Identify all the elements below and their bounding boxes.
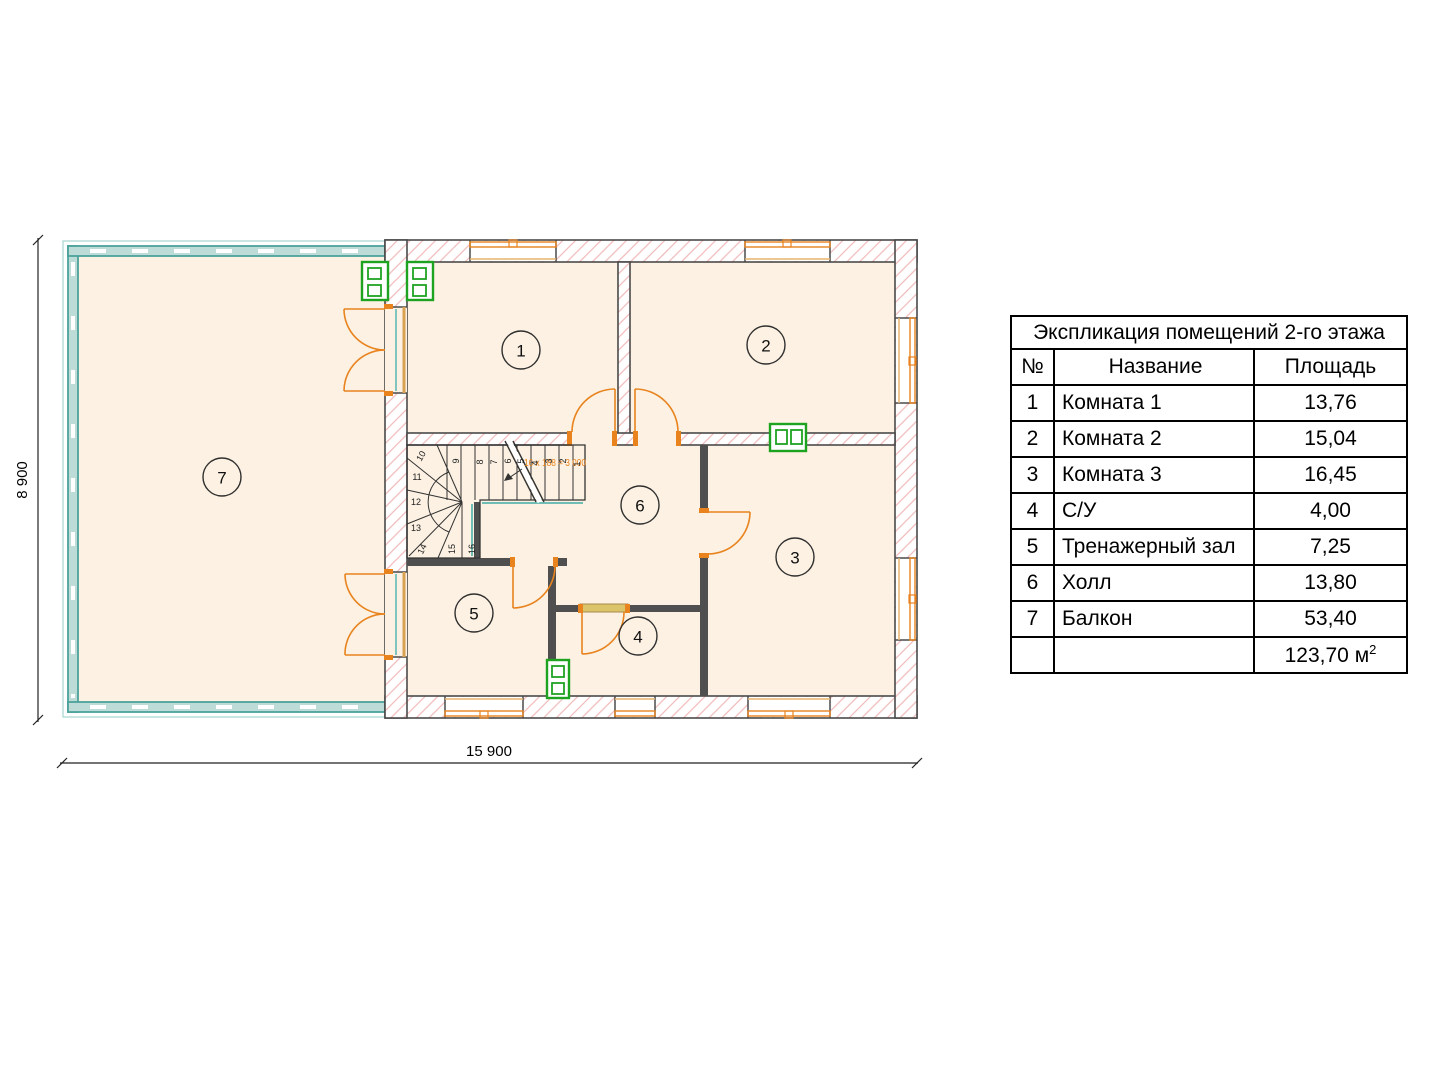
table-row: 5 Тренажерный зал 7,25: [1011, 529, 1407, 565]
row-area: 53,40: [1254, 601, 1407, 637]
svg-text:3: 3: [790, 549, 799, 568]
col-header-name: Название: [1054, 349, 1254, 385]
row-num: 7: [1011, 601, 1054, 637]
table-row: 3 Комната 3 16,45: [1011, 457, 1407, 493]
svg-text:6: 6: [503, 458, 513, 463]
svg-text:13: 13: [411, 523, 421, 533]
legend-title: Экспликация помещений 2-го этажа: [1011, 316, 1407, 349]
svg-text:11: 11: [412, 472, 421, 482]
building-floor: [385, 240, 917, 718]
row-area: 15,04: [1254, 421, 1407, 457]
row-area: 13,80: [1254, 565, 1407, 601]
total-sup: 2: [1369, 642, 1376, 657]
row-name: Комната 3: [1054, 457, 1254, 493]
svg-text:2: 2: [761, 337, 770, 356]
svg-text:2: 2: [558, 458, 568, 463]
floor-plan-sheet: 16 x 188 = 3 000 1 2 3 4 5 6 7 8 9 10 11…: [0, 0, 1440, 1080]
total-name-empty: [1054, 637, 1254, 673]
table-row: 6 Холл 13,80: [1011, 565, 1407, 601]
row-num: 3: [1011, 457, 1054, 493]
row-name: Комната 1: [1054, 385, 1254, 421]
dimension-height: 8 900: [14, 235, 43, 725]
window-top-1: [470, 240, 556, 262]
vent-block-1: [362, 262, 388, 300]
row-area: 13,76: [1254, 385, 1407, 421]
svg-text:1: 1: [516, 342, 525, 361]
row-area: 4,00: [1254, 493, 1407, 529]
table-row: 7 Балкон 53,40: [1011, 601, 1407, 637]
row-num: 5: [1011, 529, 1054, 565]
row-name: Комната 2: [1054, 421, 1254, 457]
svg-text:8: 8: [475, 459, 485, 464]
svg-text:4: 4: [530, 460, 540, 465]
legend-header-row: № Название Площадь: [1011, 349, 1407, 385]
svg-text:15 900: 15 900: [466, 743, 512, 760]
row-area: 7,25: [1254, 529, 1407, 565]
row-area: 16,45: [1254, 457, 1407, 493]
row-name: С/У: [1054, 493, 1254, 529]
window-bottom-2: [615, 696, 655, 718]
legend-title-row: Экспликация помещений 2-го этажа: [1011, 316, 1407, 349]
svg-text:7: 7: [489, 459, 499, 464]
row-num: 4: [1011, 493, 1054, 529]
window-top-2: [745, 240, 830, 262]
svg-text:1: 1: [572, 461, 582, 466]
svg-text:12: 12: [411, 497, 421, 507]
row-name: Холл: [1054, 565, 1254, 601]
svg-text:16: 16: [467, 544, 477, 554]
legend-total-row: 123,70 м2: [1011, 637, 1407, 673]
dimension-width: 15 900: [57, 743, 922, 768]
row-num: 6: [1011, 565, 1054, 601]
table-row: 2 Комната 2 15,04: [1011, 421, 1407, 457]
total-num-empty: [1011, 637, 1054, 673]
svg-text:8 900: 8 900: [14, 461, 31, 499]
window-right-1: [895, 318, 917, 403]
window-right-2: [895, 558, 917, 640]
svg-text:5: 5: [516, 458, 526, 463]
total-value: 123,70 м: [1285, 644, 1370, 667]
row-name: Тренажерный зал: [1054, 529, 1254, 565]
svg-text:9: 9: [451, 458, 461, 463]
window-bottom-1: [445, 696, 523, 718]
svg-text:15: 15: [447, 544, 457, 554]
total-area: 123,70 м2: [1254, 637, 1407, 673]
window-bottom-3: [748, 696, 830, 718]
svg-text:4: 4: [633, 628, 642, 647]
legend-table: Экспликация помещений 2-го этажа № Назва…: [1010, 315, 1408, 674]
svg-text:6: 6: [635, 497, 644, 516]
vent-block-2: [407, 262, 433, 300]
vent-block-3: [770, 424, 806, 451]
table-row: 1 Комната 1 13,76: [1011, 385, 1407, 421]
svg-text:3: 3: [544, 458, 554, 463]
row-num: 2: [1011, 421, 1054, 457]
svg-text:5: 5: [469, 605, 478, 624]
col-header-num: №: [1011, 349, 1054, 385]
vent-block-4: [547, 660, 569, 698]
svg-text:7: 7: [217, 469, 226, 488]
row-num: 1: [1011, 385, 1054, 421]
col-header-area: Площадь: [1254, 349, 1407, 385]
row-name: Балкон: [1054, 601, 1254, 637]
table-row: 4 С/У 4,00: [1011, 493, 1407, 529]
